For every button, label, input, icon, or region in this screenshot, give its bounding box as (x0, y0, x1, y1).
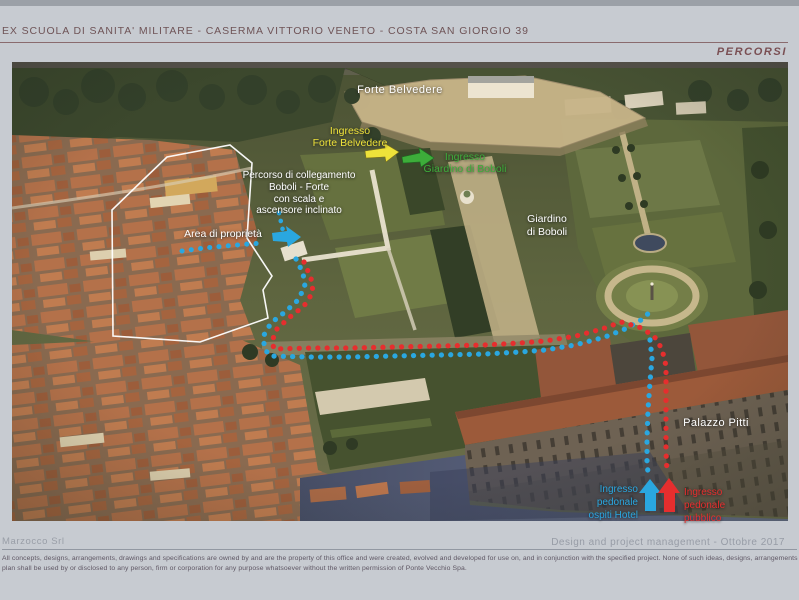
forte-belvedere-label: Forte Belvedere (357, 84, 443, 96)
ingresso-hotel-label-line3: ospiti Hotel (589, 510, 638, 521)
area-di-proprieta-label: Area di proprietà (184, 228, 262, 240)
ingresso-pubblico-label-line2: pedonale (684, 500, 725, 511)
giardino-di-boboli-label-line1: Giardino (527, 213, 567, 225)
footer-disclaimer-line2: plan shall be used by or disclosed to an… (2, 565, 799, 572)
ingresso-pubblico-label-line3: pubblico (684, 513, 721, 524)
top-border-strip (0, 0, 799, 6)
footer-company: Marzocco Srl (2, 536, 65, 547)
ingresso-hotel-label-line2: pedonale (597, 497, 638, 508)
footer-disclaimer-line1: All concepts, designs, arrangements, dra… (2, 555, 799, 562)
header-divider (0, 42, 788, 43)
ingresso-pubblico-label-line1: Ingresso (684, 487, 722, 498)
giardino-di-boboli-label-line2: di Boboli (527, 226, 567, 238)
footer-divider (2, 549, 797, 550)
percorso-label-line1: Percorso di collegamento (243, 170, 356, 181)
section-label-percorsi: PERCORSI (717, 46, 787, 58)
aerial-photo (12, 62, 788, 521)
percorso-label-line2: Boboli - Forte (269, 182, 329, 193)
ingresso-forte-label-line1: Ingresso (330, 125, 370, 137)
map-artwork (12, 62, 788, 521)
ingresso-hotel-label-line1: Ingresso (600, 484, 638, 495)
page-title: EX SCUOLA DI SANITA' MILITARE - CASERMA … (2, 25, 529, 37)
palazzo-pitti-label: Palazzo Pitti (683, 417, 749, 429)
ingresso-forte-label-line2: Forte Belvedere (313, 137, 388, 149)
ingresso-giardino-label-line1: Ingresso (445, 151, 485, 163)
ingresso-giardino-label-line2: Giardino di Boboli (424, 163, 507, 175)
footer-credit: Design and project management - Ottobre … (551, 537, 785, 548)
presentation-slide: EX SCUOLA DI SANITA' MILITARE - CASERMA … (0, 0, 799, 600)
percorso-label-line3: con scala e (274, 194, 325, 205)
percorso-label-line4: ascensore inclinato (256, 205, 342, 216)
